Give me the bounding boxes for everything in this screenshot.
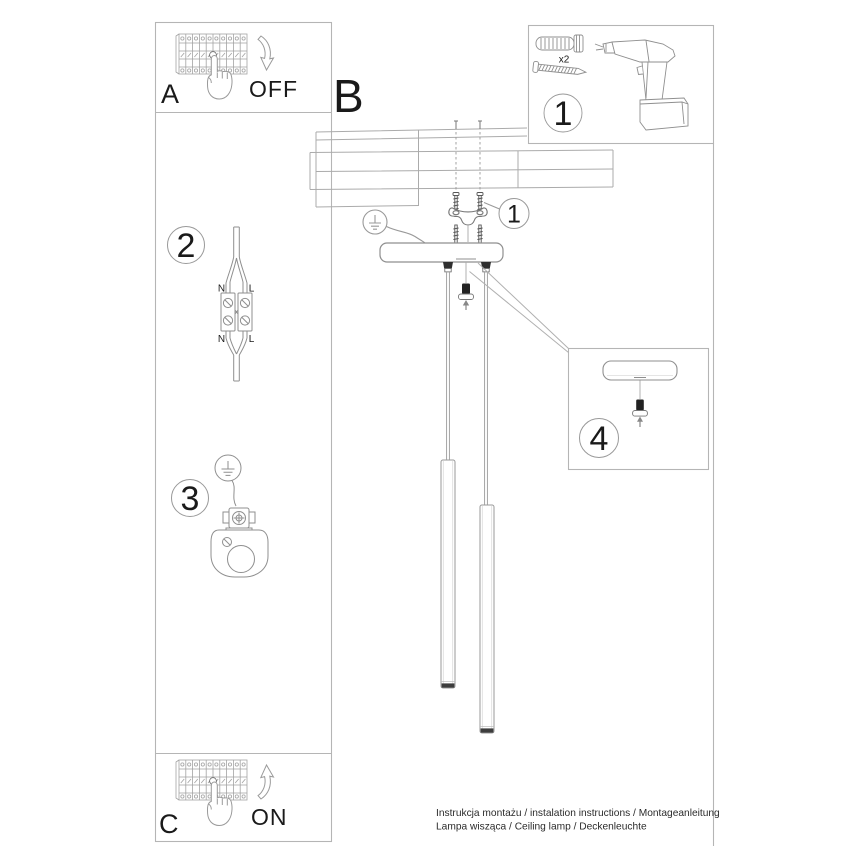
mounting-bracket-icon	[449, 208, 487, 225]
instruction-drawing: A OFF C ON B x2	[0, 0, 868, 868]
arrow-up-small-icon	[463, 300, 469, 306]
terminal-n-bottom-label: N	[218, 334, 225, 345]
ceiling-canopy-icon	[380, 243, 503, 262]
ground-wire	[232, 481, 236, 507]
panel-a-label: A	[161, 79, 179, 109]
step-2-number: 2	[177, 227, 196, 265]
arrow-down-icon	[258, 36, 274, 70]
ground-leader-line	[387, 227, 426, 244]
on-label: ON	[251, 804, 288, 830]
panel-c-label: C	[159, 809, 179, 839]
ground-clamp-icon	[223, 508, 255, 528]
arrow-up-small-icon	[637, 417, 643, 422]
panel-1-kit: x2 1	[533, 35, 688, 133]
step-1-number: 1	[554, 95, 573, 133]
step-1-callout: 1	[484, 199, 529, 229]
panel-4-detail: 4	[580, 361, 678, 458]
panel-c-power-on: C ON	[159, 760, 288, 839]
arrow-up-icon	[258, 765, 274, 799]
lamp-assembly-drawing	[363, 210, 569, 733]
ceiling-drawing	[310, 128, 613, 207]
footer: Instrukcja montażu / instalation instruc…	[436, 808, 720, 833]
cord-grip-left	[443, 262, 453, 272]
mounting-step-drawing: 1	[449, 121, 529, 247]
pendant-cable-left	[447, 272, 450, 460]
step-4-number: 4	[590, 420, 609, 458]
wall-plug-icon	[536, 35, 583, 52]
footer-line-1: Instrukcja montażu / instalation instruc…	[436, 808, 720, 819]
terminal-l-bottom-label: L	[249, 334, 255, 345]
terminal-wiring-icon	[221, 227, 252, 381]
lamp-socket-icon	[211, 528, 268, 577]
drill-icon	[595, 40, 688, 130]
step-3-number: 3	[181, 480, 200, 518]
pendant-tube-left	[441, 460, 455, 688]
pendant-tube-right	[480, 505, 494, 733]
projection-lines	[456, 132, 480, 190]
off-label: OFF	[249, 76, 298, 102]
instruction-sheet: A OFF C ON B x2	[0, 0, 868, 868]
section-b-label: B	[333, 70, 364, 122]
pendant-cable-right	[485, 272, 488, 505]
step-2-wiring: 2 N L N L	[168, 227, 255, 382]
strain-relief-detail-main	[459, 262, 474, 310]
page-frame	[156, 23, 714, 847]
terminal-n-top-label: N	[218, 284, 225, 295]
earth-ground-icon	[215, 455, 241, 481]
step-3-grounding: 3	[172, 455, 269, 577]
panel-a-power-off: A OFF	[161, 34, 298, 109]
footer-line-2: Lampa wisząca / Ceiling lamp / Deckenleu…	[436, 822, 647, 833]
terminal-l-top-label: L	[249, 284, 255, 295]
dowel-quantity-label: x2	[559, 55, 570, 66]
earth-ground-icon	[363, 210, 425, 243]
ceiling-screw-marks	[454, 121, 482, 129]
left-column-frame	[156, 23, 332, 842]
strain-relief-detail-zoomed	[633, 400, 648, 428]
callout-1-number: 1	[507, 201, 521, 229]
